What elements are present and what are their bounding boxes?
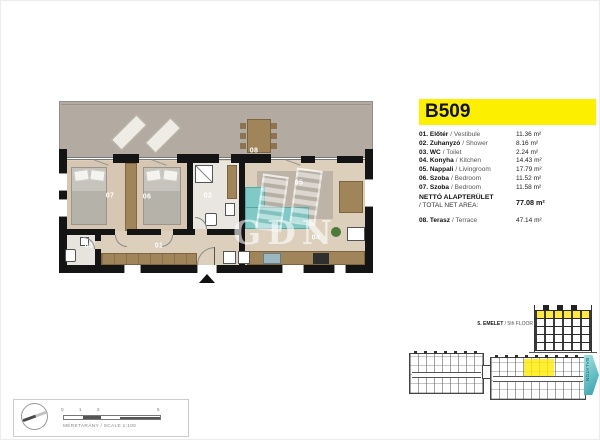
kitchen-sink xyxy=(263,253,281,264)
appliance xyxy=(238,251,250,264)
bed-07-pillow xyxy=(89,169,105,182)
elevation-floor xyxy=(535,318,591,326)
terrace-chairs-right xyxy=(271,121,277,149)
legend-row: 05. Nappali/ Livingroom 17.79 m² xyxy=(419,165,594,174)
area-value: 8.16 m² xyxy=(516,139,538,148)
keyplan-wing-left xyxy=(409,353,484,394)
bathroom-cabinet xyxy=(227,165,237,199)
scale-tick: 2 xyxy=(97,407,100,412)
scale-tick: 5 xyxy=(157,407,160,412)
total-area-value: 77.08 m² xyxy=(516,198,545,207)
area-value: 14.43 m² xyxy=(516,156,542,165)
bathroom-toilet xyxy=(205,213,217,226)
balcony-ticks xyxy=(495,355,581,358)
wardrobe-divider-07-06 xyxy=(125,163,137,231)
corridor-wardrobe xyxy=(101,253,197,265)
wall-bedrooms-corridor xyxy=(173,229,195,235)
highlighted-unit xyxy=(524,359,554,376)
watermark-text: GDN xyxy=(233,213,353,252)
legend-row: 06. Szoba/ Bedroom 11.52 m² xyxy=(419,174,594,183)
wall-wc-corridor xyxy=(95,235,101,241)
wall-06-02 xyxy=(187,160,193,231)
wall-bedrooms-corridor xyxy=(127,229,161,235)
window-wall-pier xyxy=(177,154,219,163)
room-label-vestibule: 01 xyxy=(155,243,163,250)
bed-07-blanket xyxy=(72,191,106,224)
elevation-floor xyxy=(535,342,591,351)
legend-row: 04. Konyha/ Kitchen 14.43 m² xyxy=(419,156,594,165)
scale-tick: 1 xyxy=(79,407,82,412)
room-label-wc: 03 xyxy=(85,243,93,250)
scale-bar-segment xyxy=(83,416,101,419)
terrace-edge-line xyxy=(61,104,371,105)
area-value: 47.14 m² xyxy=(516,216,542,225)
floorplan-page: 08 07 06 02 05 01 03 04 GDN B509 01. Elő… xyxy=(0,0,600,440)
scale-bar xyxy=(63,415,161,420)
highlighted-floor xyxy=(535,310,591,318)
elevation-floor xyxy=(535,326,591,334)
corridor-line xyxy=(493,376,583,382)
building-elevation xyxy=(534,305,592,352)
scale-label: MÉRETARÁNY / SCALE 1:100 xyxy=(63,424,136,429)
window-opening xyxy=(282,265,304,273)
window-wall-pier xyxy=(231,154,271,163)
legend-row: 03. WC/ Toilet 2.24 m² xyxy=(419,148,594,157)
scale-bar-segment xyxy=(120,417,160,419)
elevation-floor xyxy=(535,334,591,342)
direction-arrow-label: BALATON xyxy=(585,358,590,381)
entrance-arrow xyxy=(199,274,215,283)
floor-indicator-label: 5. EMELET / 5th FLOOR xyxy=(447,321,533,327)
room-label-bedroom6: 06 xyxy=(143,194,151,201)
terrace-area xyxy=(59,101,373,158)
kitchen-stove xyxy=(313,253,329,264)
tv-cabinet xyxy=(339,181,363,213)
total-label-en: / TOTAL NET AREA: xyxy=(419,202,594,210)
window-opening xyxy=(124,265,141,273)
window-wall-pier xyxy=(337,156,363,163)
window-wall-pier xyxy=(113,154,139,163)
legend-row: 02. Zuhanyzó/ Shower 8.16 m² xyxy=(419,139,594,148)
direction-arrow: BALATON xyxy=(584,355,599,395)
shower-stall xyxy=(195,165,213,183)
elevation-ground-line xyxy=(529,352,597,353)
entrance-door-leaf xyxy=(214,247,215,265)
window-opening xyxy=(59,173,67,191)
window-opening xyxy=(59,199,67,217)
corridor-line xyxy=(412,372,481,378)
wc-toilet xyxy=(65,249,76,262)
room-label-terrace: 08 xyxy=(250,148,258,155)
total-net-area-block: NETTÓ ALAPTERÜLET / TOTAL NET AREA: 77.0… xyxy=(419,194,594,210)
terrace-chairs-left xyxy=(240,121,246,149)
window-wall-pier xyxy=(301,156,315,163)
bed-07-pillow xyxy=(73,169,89,182)
unit-code: B509 xyxy=(419,99,596,125)
room-label-shower: 02 xyxy=(204,193,212,200)
keyplan-wing-right xyxy=(490,357,586,400)
balcony-ticks xyxy=(414,351,479,354)
scale-tick: 0 xyxy=(61,407,64,412)
entrance-opening xyxy=(197,265,217,273)
wall-right xyxy=(365,149,373,273)
room-label-bedroom7: 07 xyxy=(106,193,114,200)
area-value: 11.52 m² xyxy=(516,174,541,183)
appliance xyxy=(223,251,236,264)
area-value: 11.36 m² xyxy=(516,130,541,139)
area-value: 17.79 m² xyxy=(516,165,542,174)
legend-row-terrace: 08. Terasz/ Terrace 47.14 m² xyxy=(419,216,594,225)
window-opening xyxy=(334,265,346,273)
legend-row: 07. Szoba/ Bedroom 11.58 m² xyxy=(419,183,594,192)
unit-code-badge: B509 xyxy=(419,99,596,125)
total-label-hu: NETTÓ ALAPTERÜLET xyxy=(419,194,594,202)
window-opening xyxy=(365,179,373,207)
legend-row: 01. Előtér/ Vestibule 11.36 m² xyxy=(419,130,594,139)
area-value: 2.24 m² xyxy=(516,148,538,157)
bed-06-pillow xyxy=(145,169,161,182)
area-value: 11.58 m² xyxy=(516,183,541,192)
bed-06-pillow xyxy=(162,169,178,182)
wall-bedrooms-corridor xyxy=(67,229,115,235)
